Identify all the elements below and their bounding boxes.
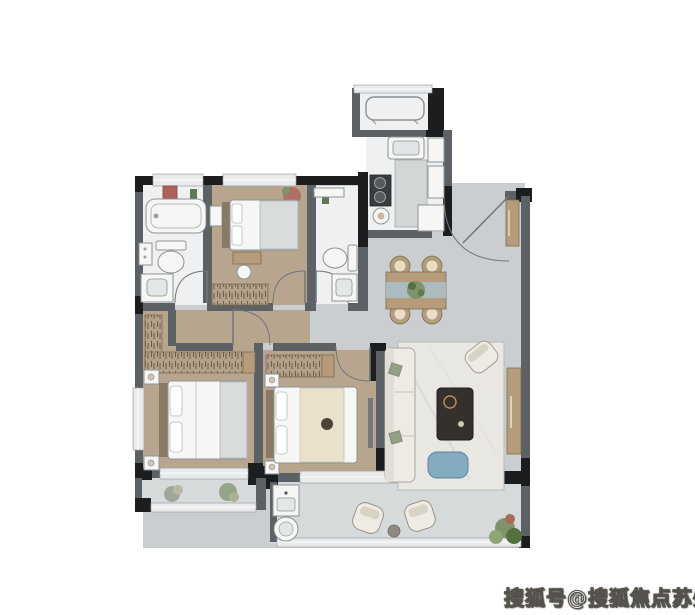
floor-hall [176,310,310,343]
master-wardrobe-top [145,352,243,373]
bed2-deco-pillow [321,418,333,430]
kitchen-cabinet-3 [418,205,444,231]
bed2-bed [266,387,357,463]
shoe-cabinet [506,200,519,246]
tv-cabinet [507,368,521,454]
blue-pouf [428,452,468,478]
vanity-desk [233,252,261,264]
wall-right [521,196,530,548]
small-bedroom-wardrobe [212,284,268,305]
small-bedroom-bed [222,200,298,250]
kitchen-cabinet-1 [428,138,444,162]
kitchen-sink-basin [393,141,419,155]
wall-bedroom-bath2 [307,185,316,303]
balcony-side-table [388,525,400,537]
sofa [385,348,415,482]
vanity-stool [237,265,251,279]
bath2-shelf [314,188,344,197]
floor-plan-page: 搜狐号@搜狐焦点苏州站 [0,0,695,615]
watermark: 搜狐号@搜狐焦点苏州站 [504,582,694,611]
bed2-tv [368,398,373,448]
bed2-wardrobe-end [322,355,334,377]
master-wardrobe-end-cabinet [243,352,255,373]
room-living [385,338,521,490]
coffee-table [437,388,473,440]
bath1-side-cabinet [139,243,152,265]
sofa-pillow [389,431,402,444]
small-bedroom-side-cabinet [210,206,222,226]
master-bed [159,381,247,459]
bath1-toilet [156,241,186,273]
floor-plan-svg [0,0,695,615]
kitchen-cabinet-2 [428,166,444,198]
